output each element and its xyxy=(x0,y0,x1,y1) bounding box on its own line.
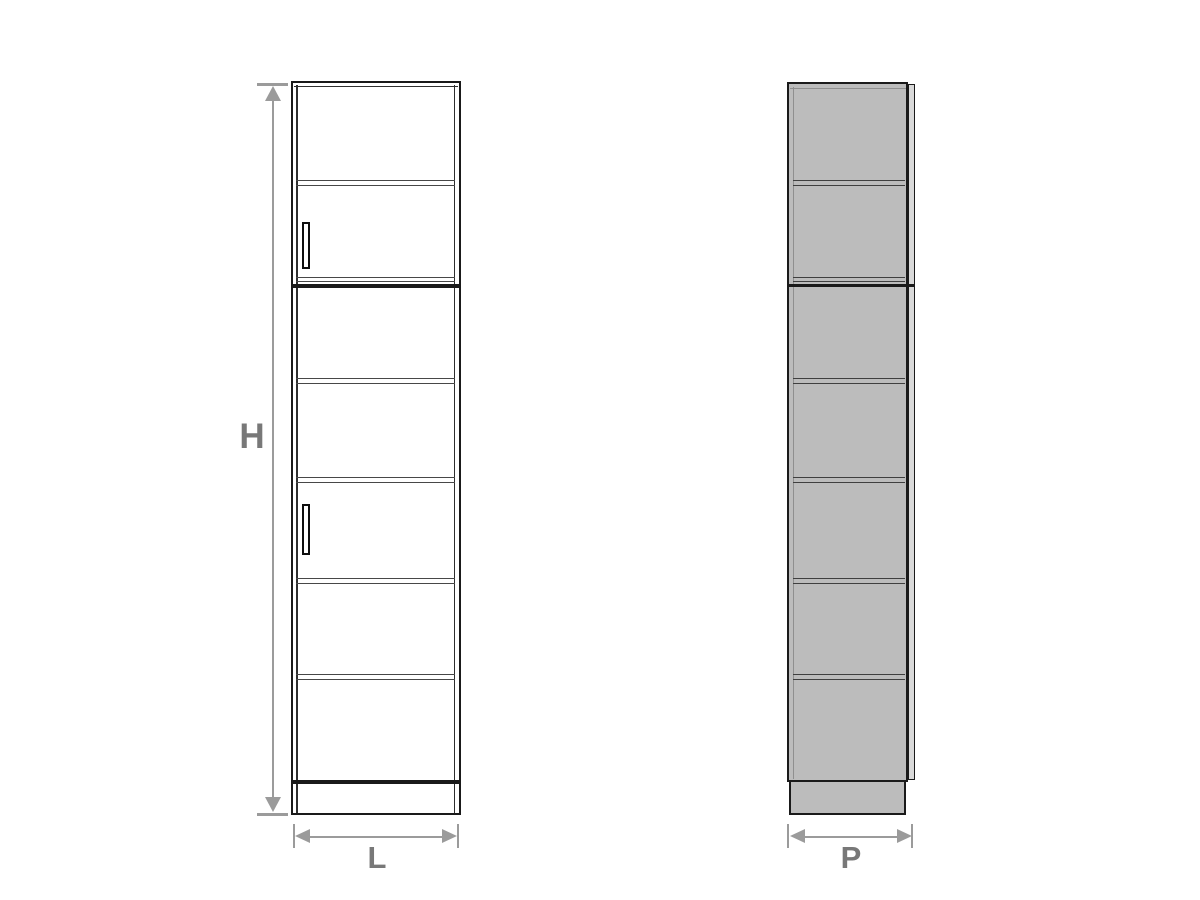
depth-label: P xyxy=(831,842,871,874)
arrowhead-up-icon xyxy=(265,86,281,101)
shelf-line xyxy=(793,674,905,680)
plinth-top-line xyxy=(291,780,461,784)
dimension-line xyxy=(306,836,446,838)
shelf-line xyxy=(296,180,455,186)
door-bottom-line xyxy=(296,277,455,282)
shelf-line xyxy=(296,578,455,584)
door-edge-strip xyxy=(908,84,915,780)
front-cabinet-outline xyxy=(291,81,461,815)
width-label: L xyxy=(357,842,397,874)
cabinet-section-divider xyxy=(788,284,914,288)
side-top-panel-line xyxy=(790,88,906,90)
upper-door-handle xyxy=(302,222,310,269)
shelf-line xyxy=(296,477,455,483)
arrowhead-right-icon xyxy=(442,829,457,843)
front-right-panel-line xyxy=(454,85,456,813)
arrowhead-down-icon xyxy=(265,797,281,812)
shelf-line xyxy=(296,378,455,384)
front-top-panel-line xyxy=(294,86,458,88)
shelf-line xyxy=(793,180,905,186)
arrowhead-left-icon xyxy=(295,829,310,843)
diagram-canvas: H L P xyxy=(0,0,1200,900)
front-left-panel-line xyxy=(296,85,298,813)
arrowhead-right-icon xyxy=(897,829,912,843)
dimension-extension-line xyxy=(257,813,288,816)
height-label: H xyxy=(232,419,272,455)
cabinet-section-divider xyxy=(291,284,461,288)
shelf-line xyxy=(793,578,905,584)
dimension-line xyxy=(800,836,900,838)
door-bottom-line xyxy=(793,277,905,282)
shelf-line xyxy=(793,378,905,384)
arrowhead-left-icon xyxy=(790,829,805,843)
shelf-line xyxy=(793,477,905,483)
lower-door-handle xyxy=(302,504,310,555)
shelf-line xyxy=(296,674,455,680)
side-plinth xyxy=(789,782,906,816)
